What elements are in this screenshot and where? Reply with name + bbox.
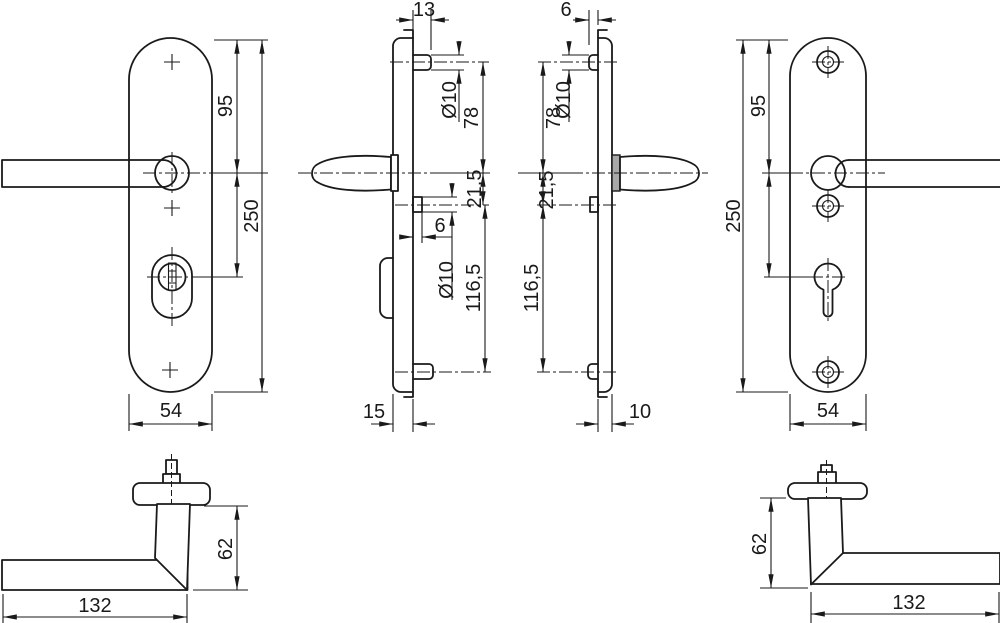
dim-label-15: 15 (363, 401, 385, 423)
dim-label-6-top: 6 (560, 0, 571, 21)
dim-label-250: 250 (723, 199, 745, 232)
dim-label-78: 78 (543, 107, 565, 129)
dim-label-62: 62 (215, 538, 237, 560)
dim-label-1165: 116,5 (463, 264, 485, 313)
grip (2, 560, 188, 590)
dim-label-215: 21,5 (536, 171, 558, 210)
face-plate (598, 30, 607, 397)
dim-label-d10-mid: Ø10 (436, 261, 458, 299)
face-plate (404, 30, 413, 397)
technical-drawing-page: 95 250 54 13 Ø10 78 21,5 (0, 0, 1000, 623)
ext-15 (393, 394, 413, 432)
rose-cap (788, 483, 867, 499)
dim-label-78: 78 (461, 107, 483, 129)
dim-label-132: 132 (892, 592, 925, 614)
view-exterior-plate-front: 95 250 54 (2, 38, 268, 431)
view-interior-plate-front: 95 250 54 (723, 38, 1000, 431)
view-handle-profile-right: 62 132 (749, 460, 1000, 623)
dim-label-95: 95 (215, 95, 237, 117)
dim-label-215: 21,5 (464, 170, 486, 209)
view-exterior-plate-side: 13 Ø10 78 21,5 116,5 6 Ø10 15 (298, 0, 491, 432)
cylinder-guard-bump (380, 258, 393, 318)
cover-profile (598, 38, 612, 392)
dim-label-250: 250 (241, 199, 263, 232)
cover-profile (393, 38, 413, 392)
ext-6-top (589, 10, 598, 45)
plate-outline (129, 38, 212, 392)
view-interior-plate-side: 6 Ø10 78 21,5 116,5 10 (518, 0, 708, 432)
dim-label-1165: 116,5 (521, 264, 543, 313)
dim-label-10: 10 (629, 401, 651, 423)
view-handle-profile-left: 62 132 (2, 454, 248, 623)
dim-label-13: 13 (413, 0, 435, 21)
dim-label-d10-top: Ø10 (439, 81, 461, 119)
dim-label-62: 62 (749, 533, 771, 555)
lever-handle (849, 160, 1000, 187)
dim-label-54: 54 (817, 400, 839, 422)
dim-label-54: 54 (160, 400, 182, 422)
dim-label-95: 95 (748, 95, 770, 117)
ext-10 (598, 394, 612, 432)
drawing-canvas: 95 250 54 13 Ø10 78 21,5 (0, 0, 1000, 623)
dim-label-132: 132 (78, 595, 111, 617)
dim-label-6-mid: 6 (434, 215, 445, 237)
